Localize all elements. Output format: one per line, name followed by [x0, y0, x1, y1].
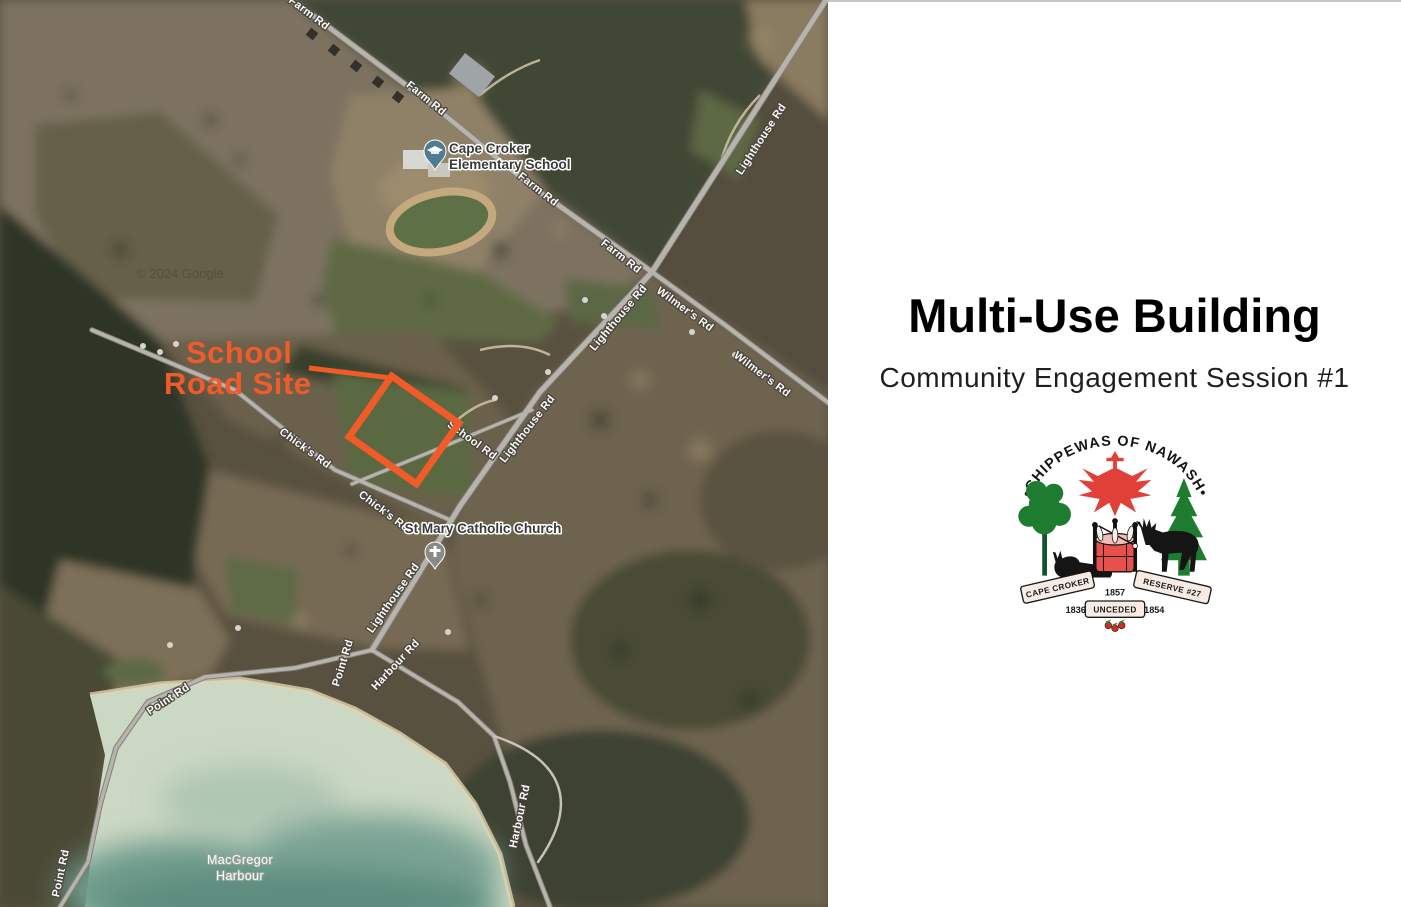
site-label-line1: School: [186, 335, 292, 370]
logo-year-top: 1857: [1104, 587, 1124, 597]
band-logo: •CHIPPEWAS OF NAWASH•: [828, 432, 1401, 635]
site-label-line2: Road Site: [164, 366, 311, 401]
title-panel: Multi-Use Building Community Engagement …: [828, 0, 1401, 907]
satellite-map: © 2024 Google Farm Rd Farm Rd Farm Rd Fa…: [0, 0, 828, 907]
drum-icon: [1092, 518, 1138, 572]
logo-year-right: 1854: [1144, 605, 1164, 615]
logo-year-left: 1836: [1065, 605, 1085, 615]
water-label-line2: Harbour: [216, 869, 264, 883]
ribbon-left: CAPE CROKER: [1020, 570, 1095, 603]
ribbon-right: RESERVE #27: [1133, 570, 1212, 604]
poi-school-label-line2: Elementary School: [449, 157, 571, 172]
ribbon-center: UNCEDED: [1085, 601, 1144, 617]
imagery-watermark: © 2024 Google: [136, 266, 224, 281]
thunderbird-icon: [1078, 451, 1151, 516]
water-label-line1: MacGregor: [207, 853, 273, 867]
strawberries-icon: [1104, 619, 1124, 631]
page-subtitle: Community Engagement Session #1: [828, 362, 1401, 394]
page-title: Multi-Use Building: [838, 290, 1391, 342]
svg-text:UNCEDED: UNCEDED: [1093, 605, 1136, 614]
poi-church-label: St Mary Catholic Church: [405, 521, 562, 536]
poi-school-label-line1: Cape Croker: [449, 141, 530, 156]
